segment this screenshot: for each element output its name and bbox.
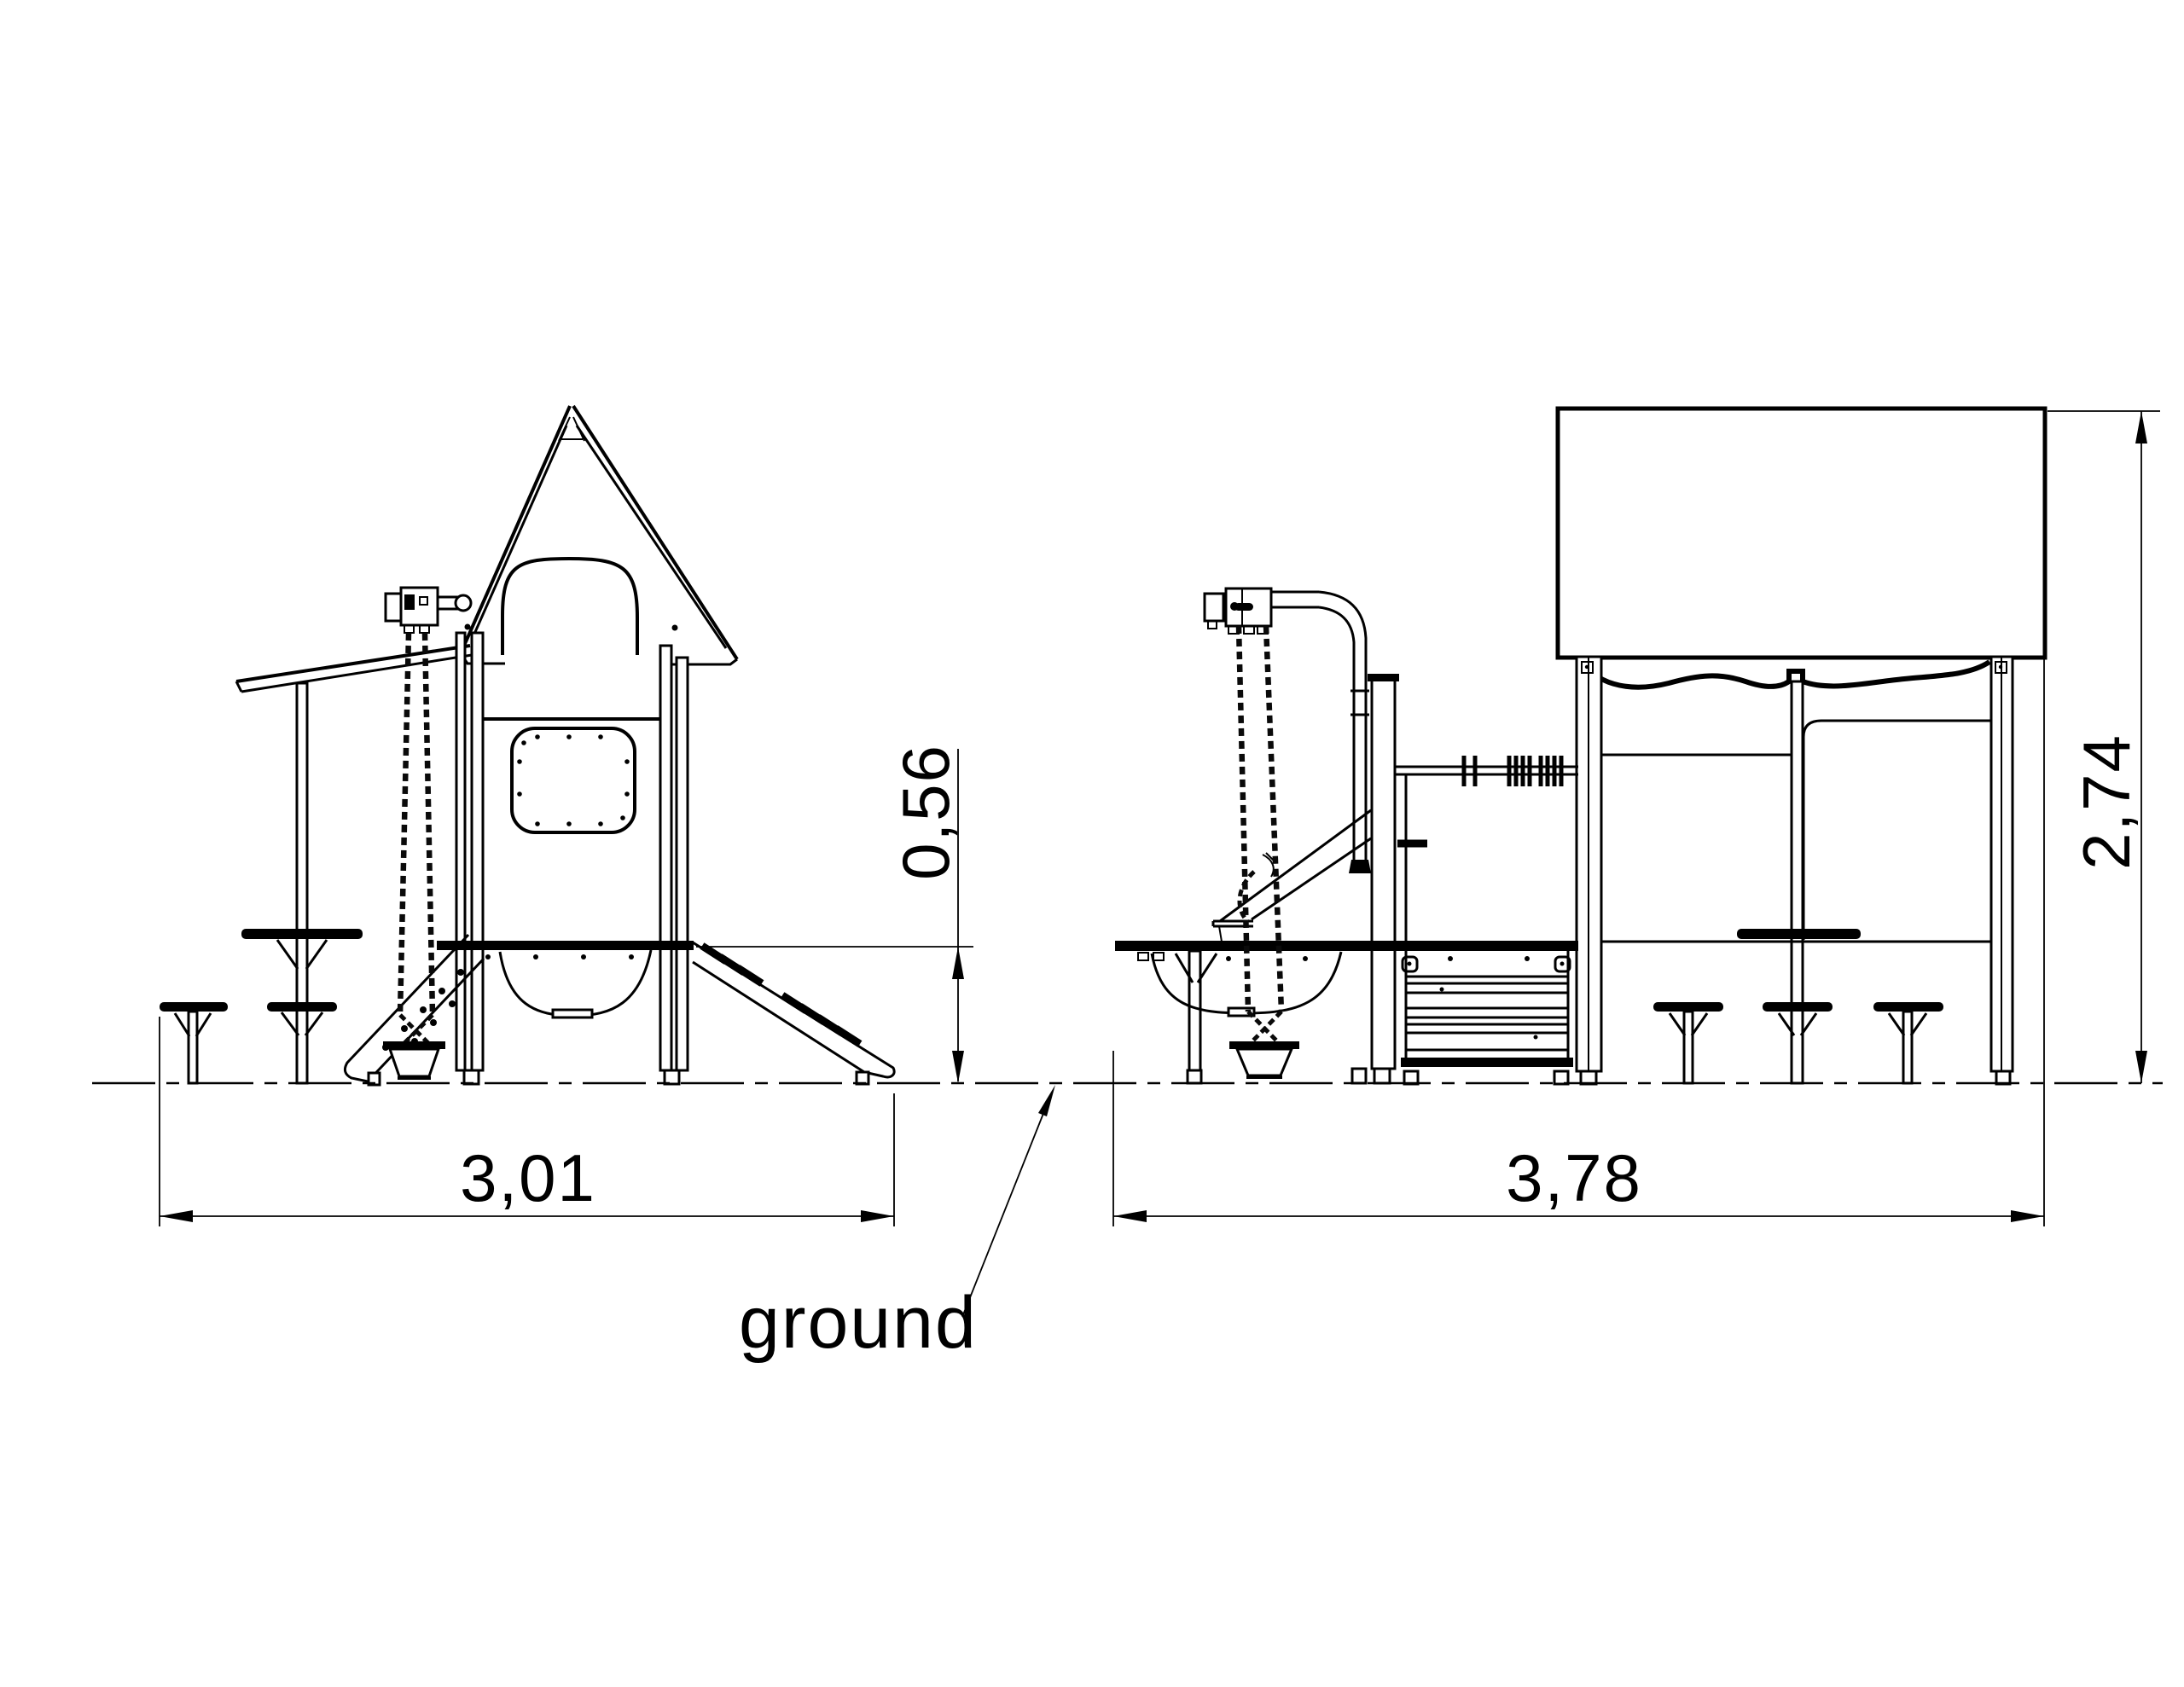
roof-valance <box>1582 662 1989 687</box>
tower-post-right <box>660 646 671 1070</box>
post-foot <box>464 1070 479 1084</box>
slide-ramp <box>693 942 894 1084</box>
left-elevation-view <box>160 406 894 1085</box>
mushroom-stool-single <box>160 1002 228 1083</box>
roof-bolt <box>672 625 678 631</box>
monkey-bar-rail <box>1396 756 1578 843</box>
post-foot <box>1352 1069 1366 1083</box>
slide-cleats <box>702 946 860 1044</box>
gable-arch <box>502 559 637 655</box>
dimension-label-right-width: 3,78 <box>1506 1140 1642 1215</box>
post-foot <box>665 1070 679 1084</box>
mushroom-table-right <box>1737 929 1861 939</box>
platform-deck <box>437 941 694 950</box>
ground-annotation: ground <box>739 1085 1055 1364</box>
dimension-label-platform-height: 0,56 <box>888 744 963 880</box>
tower-post-left <box>472 633 483 1070</box>
crane-chains <box>1239 626 1281 1044</box>
gable-roof <box>461 406 737 664</box>
awning-roof <box>236 646 472 692</box>
tower-post-back-right <box>677 658 688 1070</box>
deck-surface <box>1115 941 1578 951</box>
side-panel <box>1804 721 1991 940</box>
dimension-left-width: 3,01 <box>160 1017 894 1226</box>
deck-post-cap <box>1368 674 1399 681</box>
crane-gooseneck-post <box>1271 592 1371 873</box>
dimension-label-left-width: 3,01 <box>460 1140 596 1215</box>
dimension-label-overall-height: 2,74 <box>2069 733 2144 870</box>
drawing-sheet: 0,56 2,74 3,01 3,78 <box>0 0 2184 1687</box>
center-post <box>1792 681 1803 1083</box>
table-leg <box>1176 951 1217 1083</box>
access-ramp <box>1213 810 1371 942</box>
deck-bolts <box>485 954 634 959</box>
pulley-hoist <box>386 588 471 633</box>
tower-post-back-left <box>456 633 465 1070</box>
post-foot <box>1374 1069 1390 1083</box>
crane-bucket <box>1229 1041 1299 1077</box>
flat-roof <box>1558 409 2045 658</box>
slat-climbing-panel <box>1401 774 1573 1084</box>
roof-bolt <box>465 624 471 630</box>
sand-bowl <box>500 950 651 1017</box>
sand-bucket <box>383 1041 445 1078</box>
hoist-chains <box>400 633 433 1046</box>
ground-label: ground <box>739 1282 978 1364</box>
porthole-window <box>512 728 635 832</box>
dimension-overall-height: 2,74 <box>2044 411 2160 1226</box>
technical-drawing: 0,56 2,74 3,01 3,78 <box>0 0 2184 1687</box>
deck-post-left <box>1372 678 1395 1069</box>
awning-support-post <box>297 683 307 1083</box>
right-elevation-view <box>1115 409 2045 1084</box>
